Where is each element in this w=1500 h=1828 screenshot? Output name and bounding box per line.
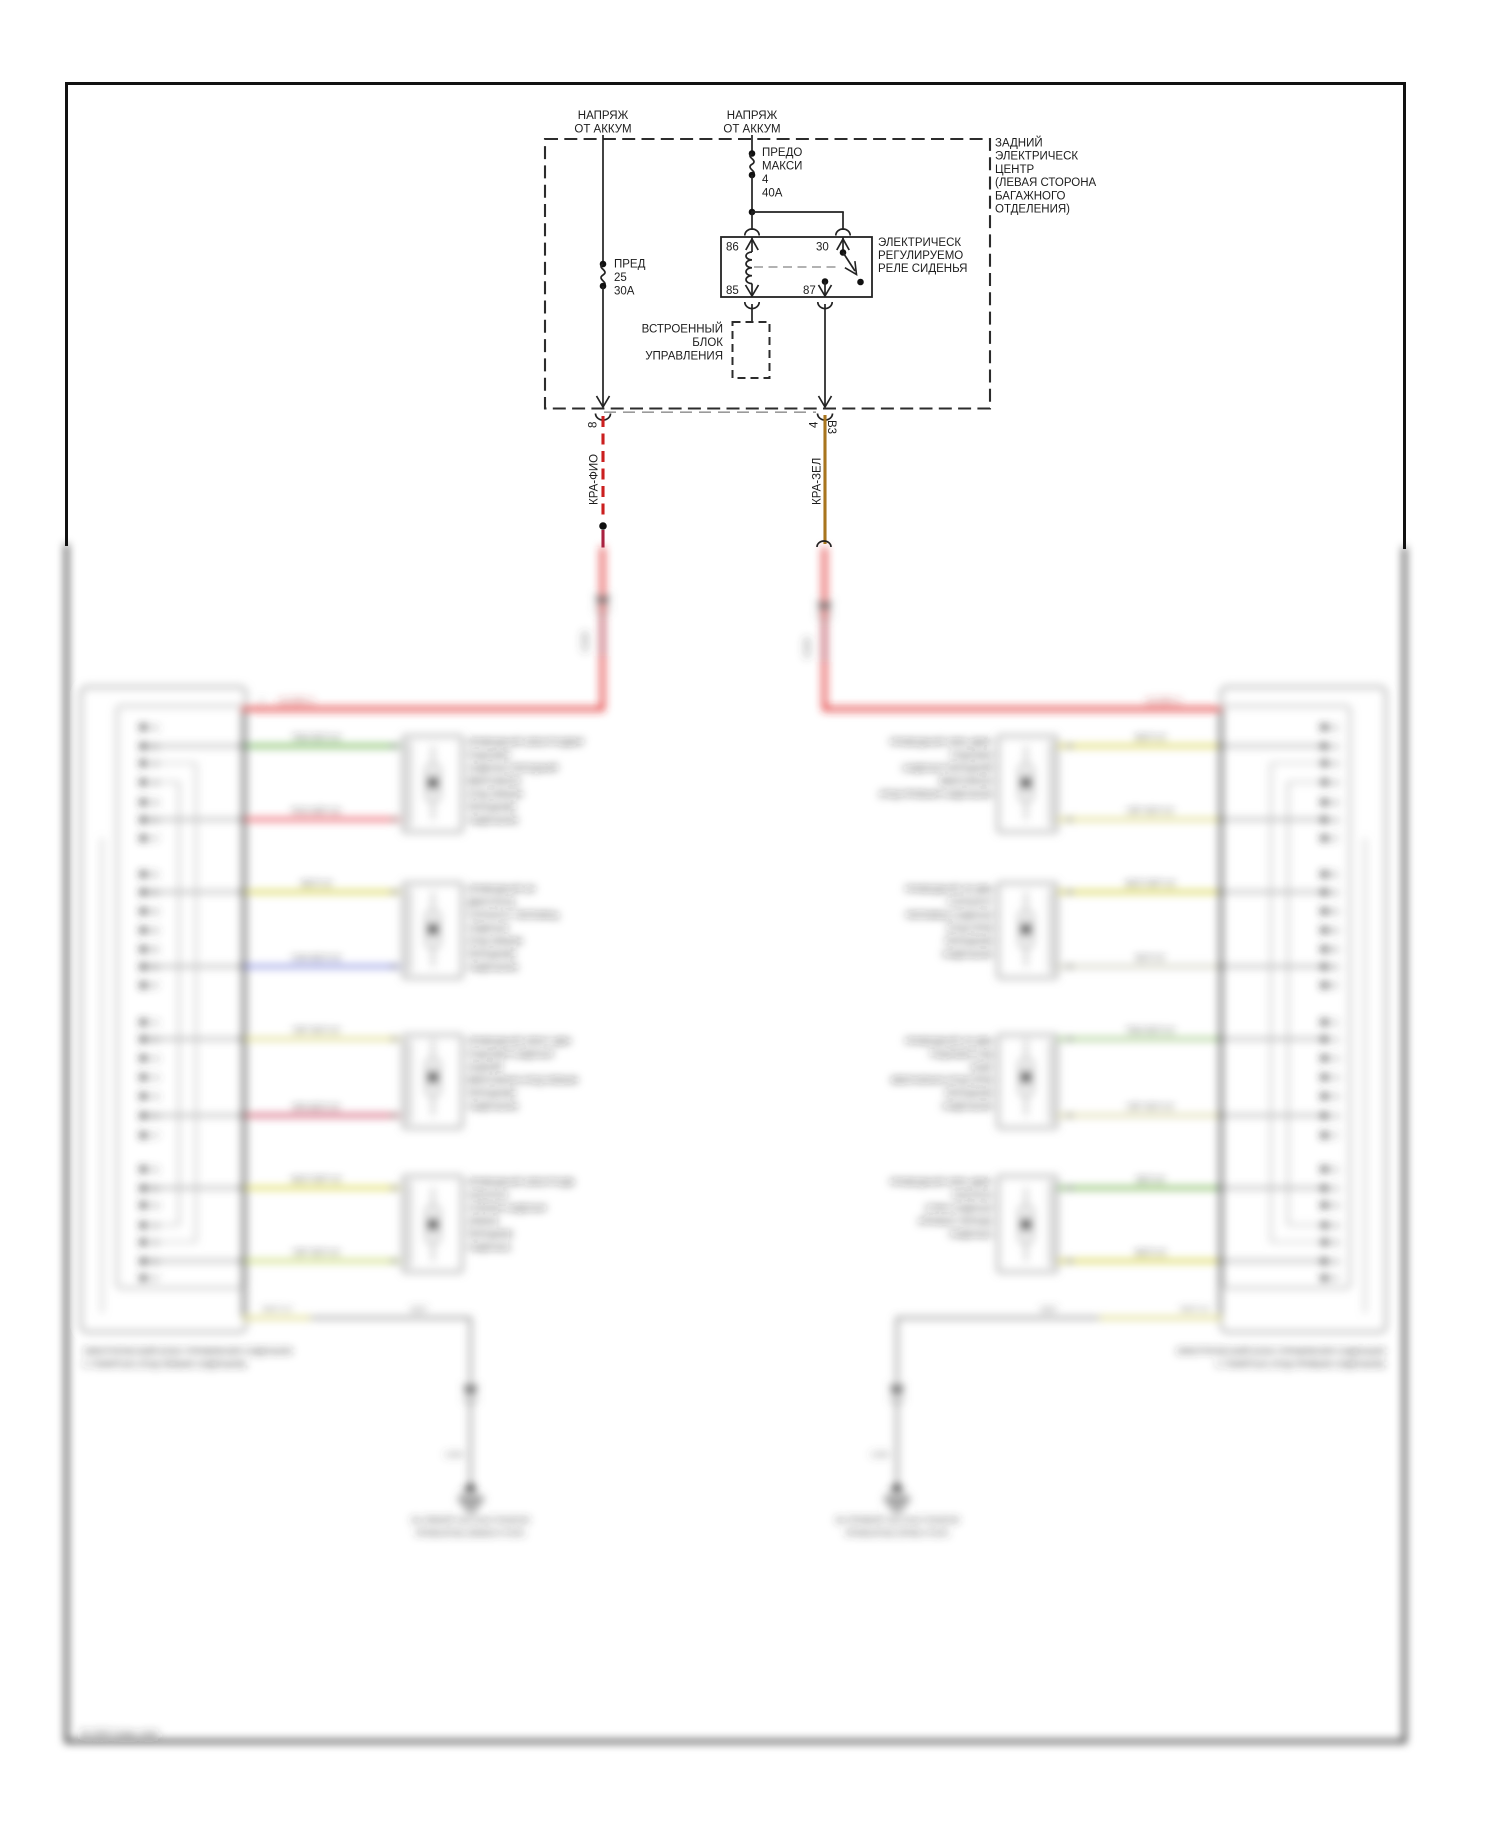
svg-text:D7: D7 [150, 1274, 160, 1283]
svg-text:D7: D7 [1330, 1274, 1340, 1283]
svg-text:ЗЕЛ 0.8: ЗЕЛ 0.8 [1136, 1176, 1165, 1185]
svg-text:ВВЕРХ/ВНИЗ: ВВЕРХ/ВНИЗ [467, 776, 520, 786]
svg-text:ПРИВОДНОЙ ЭЛ ДВИ: ПРИВОДНОЙ ЭЛ ДВИ [905, 883, 993, 894]
svg-text:КРА-ФИО: КРА-ФИО [589, 454, 601, 505]
svg-text:БАГАЖНОГО: БАГАЖНОГО [995, 190, 1066, 202]
svg-text:А6: А6 [1330, 816, 1339, 825]
svg-text:4: 4 [762, 174, 769, 186]
svg-text:D1: D1 [1330, 1165, 1340, 1174]
svg-text:4: 4 [809, 421, 821, 428]
svg-text:(ПОД ПРАВЫМ СИДЕНЬЕМ): (ПОД ПРАВЫМ СИДЕНЬЕМ) [879, 789, 993, 799]
svg-text:А2: А2 [1330, 742, 1339, 751]
svg-text:НАПРЯЖ: НАПРЯЖ [727, 110, 778, 122]
svg-text:ПРИВОДНОЙ ЭЛЕК ДВИГ: ПРИВОДНОЙ ЭЛЕК ДВИГ [890, 1176, 994, 1187]
svg-text:ЭЛЕКТРИЧЕСК: ЭЛЕКТРИЧЕСК [878, 237, 961, 249]
svg-text:С220: С220 [802, 637, 812, 658]
svg-text:С ПАМЯТЬЮ (ПОД ЛЕВЫМ СИДЕНЬЕМ): С ПАМЯТЬЮ (ПОД ЛЕВЫМ СИДЕНЬЕМ) [83, 1359, 247, 1369]
svg-text:30А: 30А [614, 286, 635, 298]
svg-text:ПЕРЕДНИМ: ПЕРЕДНИМ [945, 936, 993, 946]
svg-text:в: в [260, 696, 264, 705]
svg-text:РЕГУЛИРУЕМО: РЕГУЛИРУЕМО [878, 250, 963, 262]
svg-text:ВСТРОЕННЫЙ: ВСТРОЕННЫЙ [642, 323, 723, 336]
svg-text:ПЕРЕДНИМ: ПЕРЕДНИМ [945, 1088, 993, 1098]
svg-text:СИДЕНЬЕМ): СИДЕНЬЕМ) [467, 815, 518, 825]
svg-text:В3: В3 [825, 420, 837, 434]
svg-text:СИДЕНЬЕМ): СИДЕНЬЕМ) [942, 949, 993, 959]
svg-text:А3: А3 [1330, 759, 1339, 768]
svg-text:ПОДУШКИ СИДЕНЬЯ: ПОДУШКИ СИДЕНЬЯ [467, 1049, 553, 1059]
svg-text:ЖЕЛ 0.8: ЖЕЛ 0.8 [300, 880, 332, 889]
svg-text:С3: С3 [1330, 1054, 1340, 1063]
svg-text:ЖЕЛ-ЧЕР 0.8: ЖЕЛ-ЧЕР 0.8 [1125, 880, 1176, 889]
svg-text:85: 85 [726, 285, 739, 297]
svg-text:В1: В1 [150, 870, 159, 879]
svg-text:ОТ АККУМ: ОТ АККУМ [723, 124, 780, 136]
svg-text:ЖЕЛ 0.8: ЖЕЛ 0.8 [1134, 1249, 1166, 1258]
svg-text:С405: С405 [445, 1450, 463, 1459]
svg-text:А4: А4 [150, 778, 159, 787]
svg-text:ВВЕРХ/ВНИЗ (ПОД ПРАВ: ВВЕРХ/ВНИЗ (ПОД ПРАВ [891, 1075, 993, 1085]
svg-text:ЗА ЛЕВОЙ ЧАСТЬЮ ПАНЕЛИ: ЗА ЛЕВОЙ ЧАСТЬЮ ПАНЕЛИ [411, 1514, 530, 1525]
svg-text:G301: G301 [888, 1487, 906, 1496]
svg-text:ПРЕДО: ПРЕДО [762, 147, 802, 159]
svg-text:ЦЕНТР: ЦЕНТР [995, 164, 1035, 176]
svg-text:S357: S357 [1040, 1305, 1058, 1314]
svg-text:D4: D4 [150, 1221, 160, 1230]
svg-text:СВТ-ЗЕЛ 0.8: СВТ-ЗЕЛ 0.8 [293, 1027, 340, 1036]
svg-text:0.8 КРА 3: 0.8 КРА 3 [1146, 697, 1181, 706]
svg-text:ТЕМ-ЗЕЛ 0.8: ТЕМ-ЗЕЛ 0.8 [1126, 1027, 1175, 1036]
svg-text:С405: С405 [871, 1450, 889, 1459]
svg-text:СИДЕНЬЯ ПЕРЕДНИЙ: СИДЕНЬЯ ПЕРЕДНИЙ [902, 762, 993, 773]
svg-text:ЖЕЛ-ЧЕР 0.8: ЖЕЛ-ЧЕР 0.8 [291, 1176, 342, 1185]
svg-text:ВВЕРХ/ВНИЗ (ПОД ЛЕВЫМ: ВВЕРХ/ВНИЗ (ПОД ЛЕВЫМ [467, 1075, 578, 1085]
svg-text:ТЕМ-ЗЕЛ 0.8: ТЕМ-ЗЕЛ 0.8 [292, 734, 341, 743]
svg-text:S257: S257 [410, 1305, 428, 1314]
svg-text:С1: С1 [1330, 1018, 1340, 1027]
svg-text:D5: D5 [1330, 1238, 1340, 1247]
svg-text:ПЕРЕДНЕЕ: ПЕРЕДНЕЕ [467, 1229, 514, 1239]
svg-text:СИДЕНЬЕ): СИДЕНЬЕ) [467, 1242, 511, 1252]
svg-text:ГОРИЗОНТ: ГОРИЗОНТ [948, 897, 994, 907]
svg-text:(ЛЕВАЯ СТОРОНА: (ЛЕВАЯ СТОРОНА [995, 177, 1097, 189]
svg-text:С4: С4 [150, 1073, 160, 1082]
svg-text:СИДЕНЬЕ): СИДЕНЬЕ) [949, 1229, 993, 1239]
svg-text:ЗАДН: ЗАДН [970, 1062, 993, 1072]
svg-text:ПРИВОДНОЙ ЭЛЕКТРОДВИГ: ПРИВОДНОЙ ЭЛЕКТРОДВИГ [467, 736, 585, 747]
svg-text:В2: В2 [1330, 888, 1339, 897]
svg-text:В3: В3 [1330, 907, 1339, 916]
svg-text:СИДЕНЬЕМ): СИДЕНЬЕМ) [942, 1101, 993, 1111]
svg-text:А1: А1 [150, 723, 159, 732]
svg-text:НАКЛОНА: НАКЛОНА [952, 1190, 993, 1200]
svg-text:РОЗ-ЧЕР 0.8: РОЗ-ЧЕР 0.8 [292, 808, 341, 817]
svg-text:С6: С6 [1330, 1112, 1340, 1121]
svg-text:С2: С2 [1330, 1035, 1340, 1044]
svg-text:СИДЕНЬЕМ): СИДЕНЬЕМ) [467, 1101, 518, 1111]
svg-text:А5: А5 [150, 798, 159, 807]
svg-text:А4: А4 [1330, 778, 1339, 787]
svg-text:8: 8 [588, 422, 600, 428]
svg-text:ПРИВОДНОЙ ЭЛЕКТ ДВИ: ПРИВОДНОЙ ЭЛЕКТ ДВИ [467, 1035, 571, 1046]
svg-text:D2: D2 [1330, 1184, 1340, 1193]
svg-text:86: 86 [726, 242, 739, 254]
svg-text:(ПОД ЛЕВЫМ: (ПОД ЛЕВЫМ [467, 789, 522, 799]
svg-text:ДВИГАТЕЛЬ: ДВИГАТЕЛЬ [467, 897, 516, 907]
svg-text:СВТ-ЗЕЛ 0.8: СВТ-ЗЕЛ 0.8 [293, 1249, 340, 1258]
svg-text:ЭЛЕКТРИЧЕСКИЙ БЛОК УПРАВЛЕНИЯ: ЭЛЕКТРИЧЕСКИЙ БЛОК УПРАВЛЕНИЯ СИДЕНЬЕМ [1176, 1345, 1385, 1356]
svg-text:25: 25 [614, 272, 627, 284]
svg-text:(ПРАВОЕ ПЕРЕДН: (ПРАВОЕ ПЕРЕДН [918, 1216, 993, 1226]
svg-text:БЕЛ 0.8: БЕЛ 0.8 [1135, 955, 1165, 964]
svg-text:НАКЛОНА: НАКЛОНА [467, 1190, 508, 1200]
svg-text:ОТ АККУМ: ОТ АККУМ [574, 124, 631, 136]
svg-text:КРА-БЕЛ 0.8: КРА-БЕЛ 0.8 [293, 1104, 340, 1113]
svg-text:СВТ-ЗЕЛ 0.8: СВТ-ЗЕЛ 0.8 [1127, 808, 1174, 817]
svg-text:ЖЕЛ 0.8: ЖЕЛ 0.8 [1180, 1305, 1209, 1314]
svg-text:D1: D1 [150, 1165, 160, 1174]
svg-text:МАКСИ: МАКСИ [762, 161, 802, 173]
svg-text:С4: С4 [1330, 1073, 1340, 1082]
svg-text:ЗА ПРАВОЙ ЧАСТЬЮ ПАНЕЛИ: ЗА ПРАВОЙ ЧАСТЬЮ ПАНЕЛИ [835, 1514, 960, 1525]
svg-text:D3: D3 [1330, 1201, 1340, 1210]
svg-text:ПЕРЕДНИМ: ПЕРЕДНИМ [467, 802, 515, 812]
svg-text:А5: А5 [1330, 798, 1339, 807]
svg-text:(ПОД ЛЕВЫМ: (ПОД ЛЕВЫМ [467, 936, 522, 946]
svg-text:В3: В3 [150, 907, 159, 916]
svg-text:ЭЛЕКТРИЧЕСКИЙ БЛОК УПРАВЛЕНИЯ: ЭЛЕКТРИЧЕСКИЙ БЛОК УПРАВЛЕНИЯ СИДЕНЬЕМ [83, 1345, 292, 1356]
svg-text:С ПАМЯТЬЮ (ПОД ПРАВЫМ СИДЕНЬЕМ: С ПАМЯТЬЮ (ПОД ПРАВЫМ СИДЕНЬЕМ) [1216, 1359, 1385, 1369]
svg-text:СПИН СИДЕНЬЯ: СПИН СИДЕНЬЯ [925, 1203, 993, 1213]
svg-text:А1: А1 [1330, 723, 1339, 732]
svg-text:С5: С5 [1330, 1092, 1340, 1101]
svg-text:D6: D6 [1330, 1257, 1340, 1266]
svg-text:КРА-ЗЕЛ: КРА-ЗЕЛ [812, 458, 824, 505]
svg-text:24-1543 Схемы элект: 24-1543 Схемы элект [80, 1729, 160, 1738]
svg-text:ЗАДНИЙ: ЗАДНИЙ [995, 137, 1043, 150]
svg-text:СПИНКИ СИДЕНЬЯ: СПИНКИ СИДЕНЬЯ [467, 1203, 546, 1213]
svg-text:ПРИБОРОВ (ПРАВ СТОР): ПРИБОРОВ (ПРАВ СТОР) [845, 1528, 949, 1538]
svg-text:D4: D4 [1330, 1221, 1340, 1230]
svg-text:ПРИВОДНОЙ ЭЛ: ПРИВОДНОЙ ЭЛ [467, 883, 535, 894]
svg-text:ПЕРЕМЕЩ СИДЕНЬЯ: ПЕРЕМЕЩ СИДЕНЬЯ [906, 910, 993, 920]
svg-text:(ЛЕВОЕ: (ЛЕВОЕ [467, 1216, 499, 1226]
svg-text:С5: С5 [150, 1092, 160, 1101]
svg-text:ПОДУШКИ СИД: ПОДУШКИ СИД [930, 1049, 993, 1059]
svg-text:40А: 40А [762, 188, 783, 200]
svg-text:В7: В7 [150, 981, 159, 990]
svg-text:ВВЕРХ/ВНИЗ: ВВЕРХ/ВНИЗ [940, 776, 993, 786]
svg-text:А7: А7 [150, 834, 159, 843]
svg-text:В6: В6 [1330, 963, 1339, 972]
svg-text:ЭЛЕКТРИЧЕСК: ЭЛЕКТРИЧЕСК [995, 151, 1078, 163]
svg-text:ПРИВОДНОЙ ЭЛ ДВИ: ПРИВОДНОЙ ЭЛ ДВИ [905, 1035, 993, 1046]
svg-text:СИДЕНЬЯ ПЕРЕДНИЙ: СИДЕНЬЯ ПЕРЕДНИЙ [467, 762, 558, 773]
svg-text:БЛОК: БЛОК [692, 337, 723, 349]
svg-text:СИДЕНЬЕМ): СИДЕНЬЕМ) [467, 962, 518, 972]
svg-text:СИН-БЕЛ 0.8: СИН-БЕЛ 0.8 [291, 955, 341, 964]
svg-text:ЗАДНИЙ: ЗАДНИЙ [467, 1061, 502, 1072]
svg-text:В4: В4 [150, 926, 159, 935]
svg-text:ОТДЕЛЕНИЯ): ОТДЕЛЕНИЯ) [995, 204, 1070, 216]
svg-text:С220: С220 [580, 631, 590, 652]
svg-text:В1: В1 [1330, 870, 1339, 879]
svg-text:ПРИВОДНОЙ ЭЛЕК ДВИГ: ПРИВОДНОЙ ЭЛЕК ДВИГ [890, 736, 994, 747]
svg-text:ПОДУШКИ: ПОДУШКИ [467, 750, 510, 760]
svg-text:В5: В5 [150, 945, 159, 954]
svg-text:ПРИВОДНОЙ ЭЛЕКТРОДВ: ПРИВОДНОЙ ЭЛЕКТРОДВ [467, 1176, 575, 1187]
svg-text:87: 87 [803, 285, 816, 297]
svg-text:А3: А3 [150, 759, 159, 768]
svg-text:(ПОД ПРАВ: (ПОД ПРАВ [947, 923, 993, 933]
svg-text:ПЕРЕДНИМ: ПЕРЕДНИМ [467, 949, 515, 959]
svg-text:ЖЕЛ 0.8: ЖЕЛ 0.8 [262, 1305, 291, 1314]
svg-text:С1: С1 [150, 1018, 160, 1027]
svg-text:ПРИБОРОВ (ЛЕВАЯ СТОР): ПРИБОРОВ (ЛЕВАЯ СТОР) [415, 1528, 525, 1538]
svg-text:А7: А7 [1330, 834, 1339, 843]
svg-text:ПЕРЕДНИМ: ПЕРЕДНИМ [467, 1088, 515, 1098]
svg-text:СВТ-ЗЕЛ 0.8: СВТ-ЗЕЛ 0.8 [1127, 1104, 1174, 1113]
svg-text:С3: С3 [150, 1054, 160, 1063]
svg-text:РЕЛЕ СИДЕНЬЯ: РЕЛЕ СИДЕНЬЯ [878, 263, 967, 275]
svg-text:ГОРИЗОНТ ПЕРЕМЕЩ: ГОРИЗОНТ ПЕРЕМЕЩ [467, 910, 559, 920]
svg-text:0.8 КРА 3: 0.8 КРА 3 [279, 697, 314, 706]
svg-text:В4: В4 [1330, 926, 1339, 935]
svg-text:С7: С7 [150, 1131, 160, 1140]
svg-text:В7: В7 [1330, 981, 1339, 990]
svg-text:В5: В5 [1330, 945, 1339, 954]
svg-text:СИДЕНЬЯ: СИДЕНЬЯ [467, 923, 508, 933]
svg-text:С7: С7 [1330, 1131, 1340, 1140]
svg-text:G401: G401 [461, 1487, 479, 1496]
svg-text:ЖЕЛ 0.8: ЖЕЛ 0.8 [1134, 734, 1166, 743]
svg-text:D5: D5 [150, 1238, 160, 1247]
svg-text:D3: D3 [150, 1201, 160, 1210]
svg-text:НАПРЯЖ: НАПРЯЖ [578, 110, 629, 122]
svg-text:30: 30 [816, 242, 829, 254]
svg-text:ПОДУШКИ: ПОДУШКИ [950, 750, 993, 760]
svg-text:ПРЕД: ПРЕД [614, 259, 646, 271]
svg-text:УПРАВЛЕНИЯ: УПРАВЛЕНИЯ [645, 351, 723, 363]
